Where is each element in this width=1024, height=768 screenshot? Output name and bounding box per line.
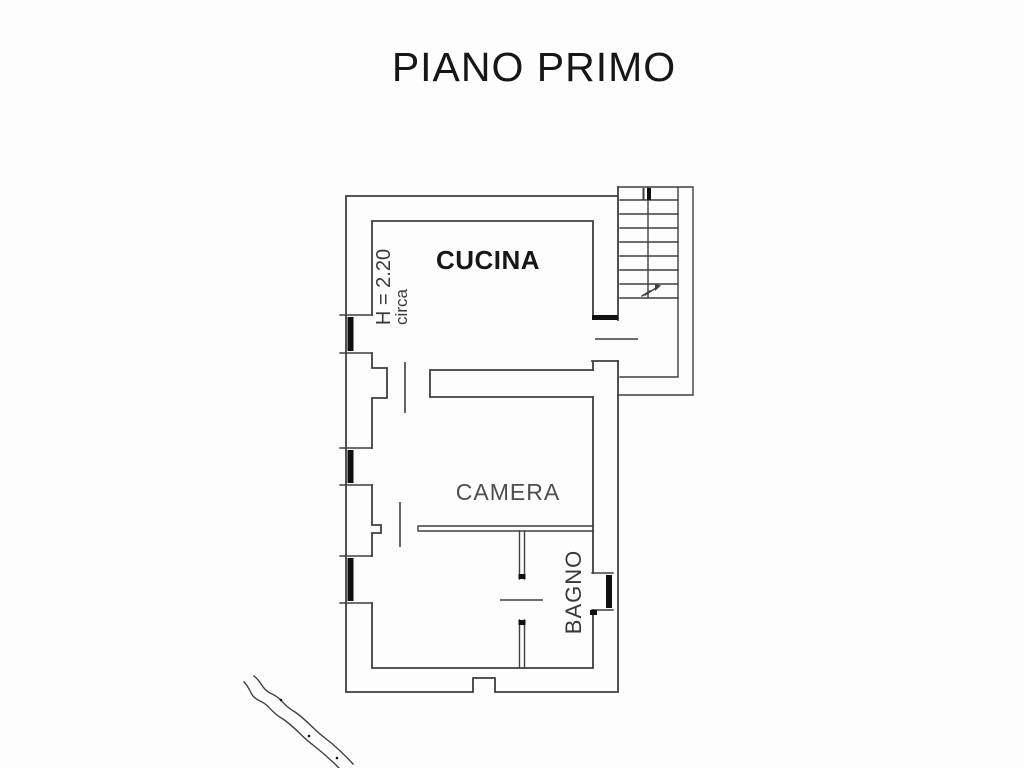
exterior-path bbox=[244, 676, 353, 768]
height-annotation: H = 2.20 circa bbox=[373, 249, 411, 325]
window-symbol-right bbox=[590, 573, 613, 615]
stair-direction-arrow-icon bbox=[642, 284, 661, 296]
door-jamb-mark bbox=[519, 574, 526, 579]
window-symbol-left-3 bbox=[340, 556, 372, 603]
stair-start-mark bbox=[643, 188, 645, 200]
stair-start-mark bbox=[647, 188, 651, 200]
page-title: PIANO PRIMO bbox=[392, 44, 676, 90]
floor-plan-drawing: PIANO PRIMO bbox=[0, 0, 1024, 768]
window-symbol-left-2 bbox=[340, 448, 372, 485]
staircase bbox=[618, 187, 693, 395]
camera-partition-wall bbox=[418, 526, 593, 531]
window-symbol-left-1 bbox=[340, 315, 372, 353]
room-label-cucina: CUCINA bbox=[436, 245, 540, 275]
room-label-bagno: BAGNO bbox=[561, 550, 586, 634]
cucina-camera-wall bbox=[430, 370, 593, 397]
floor-plan-page: PIANO PRIMO bbox=[0, 0, 1024, 768]
room-label-camera: CAMERA bbox=[456, 479, 560, 505]
stair-steps bbox=[620, 200, 678, 298]
height-qualifier: circa bbox=[392, 289, 411, 325]
kitchen-stair-door bbox=[592, 315, 638, 339]
door-jamb-mark bbox=[519, 620, 526, 625]
door-threshold bbox=[592, 315, 618, 320]
